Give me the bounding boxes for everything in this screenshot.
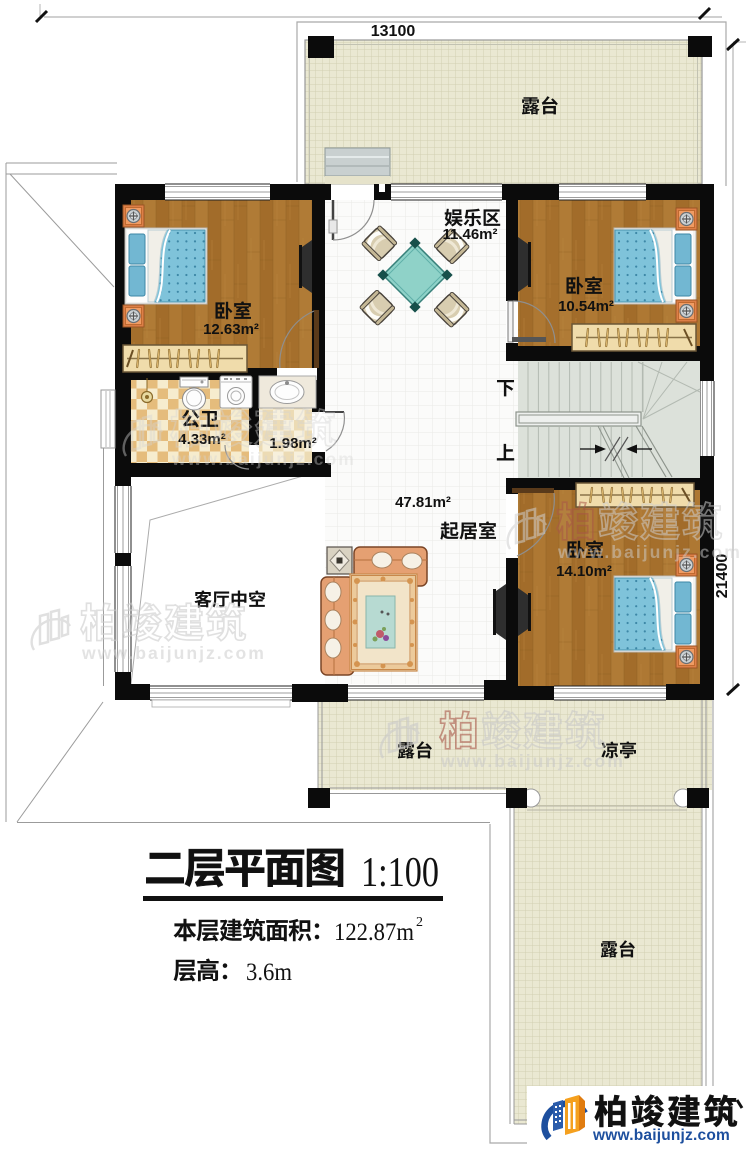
svg-text:122.87m: 122.87m — [334, 919, 414, 946]
svg-text:3.6m: 3.6m — [246, 959, 292, 986]
svg-text:1:100: 1:100 — [361, 850, 439, 896]
svg-text:www.baijunjz.com: www.baijunjz.com — [557, 542, 742, 562]
svg-text:www.baijunjz.com: www.baijunjz.com — [592, 1127, 730, 1144]
svg-text:10.54m²: 10.54m² — [558, 298, 614, 315]
svg-text:2: 2 — [416, 915, 423, 930]
svg-text:www.baijunjz.com: www.baijunjz.com — [171, 449, 356, 469]
svg-text:11.46m²: 11.46m² — [442, 226, 497, 243]
svg-text:13100: 13100 — [371, 23, 416, 40]
svg-text:47.81m²: 47.81m² — [395, 494, 451, 511]
svg-text:14.10m²: 14.10m² — [556, 563, 612, 580]
svg-text:www.baijunjz.com: www.baijunjz.com — [440, 751, 625, 771]
svg-text:12.63m²: 12.63m² — [203, 321, 259, 338]
svg-text:www.baijunjz.com: www.baijunjz.com — [81, 643, 266, 663]
